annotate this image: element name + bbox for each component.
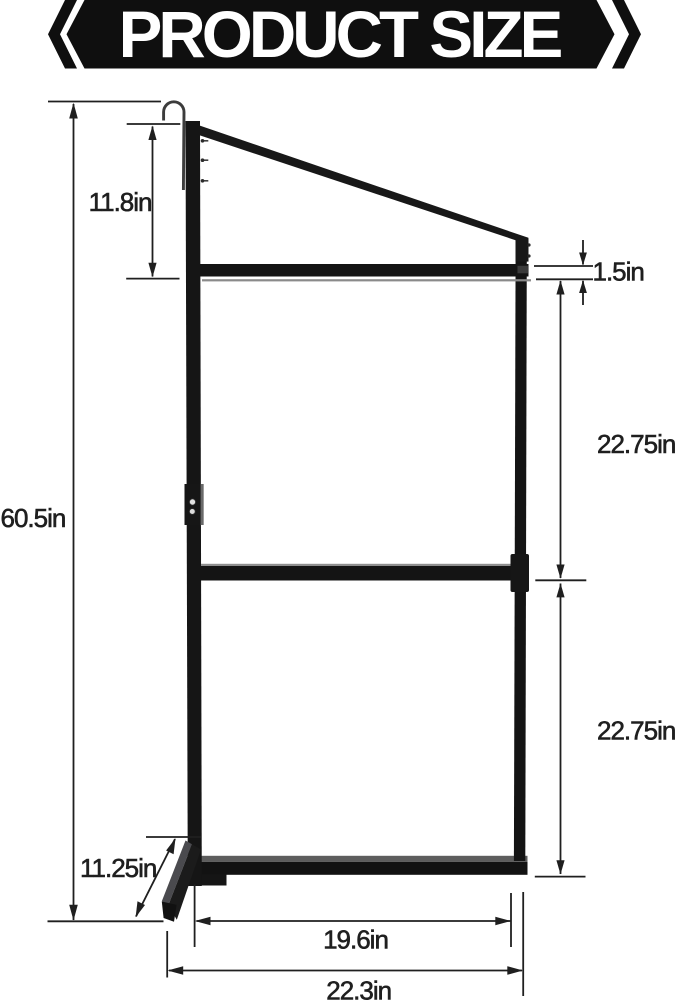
svg-text:1.5in: 1.5in [593,257,644,287]
svg-text:PRODUCT SIZE: PRODUCT SIZE [119,0,562,71]
svg-text:60.5in: 60.5in [1,503,66,533]
svg-text:22.75in: 22.75in [597,429,675,459]
svg-text:22.3in: 22.3in [326,976,391,1000]
svg-text:22.75in: 22.75in [597,716,675,746]
svg-text:11.25in: 11.25in [80,853,156,883]
svg-text:11.8in: 11.8in [89,187,152,217]
svg-text:19.6in: 19.6in [323,924,388,954]
